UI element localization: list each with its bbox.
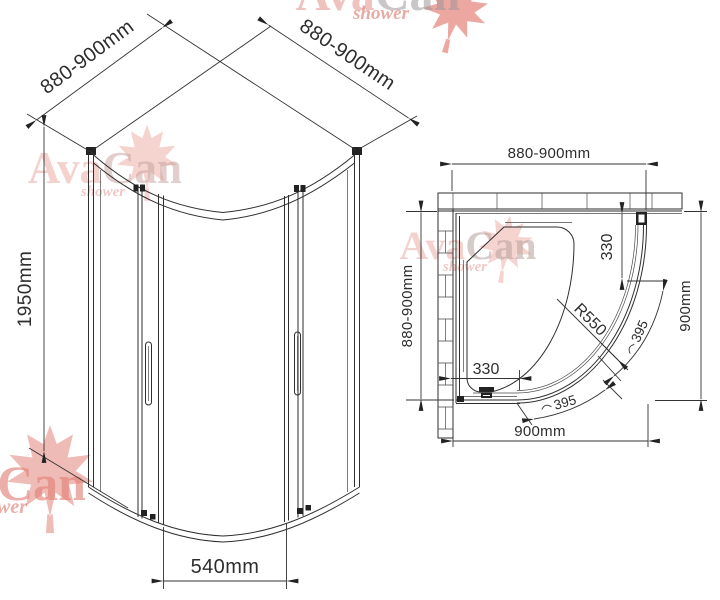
watermark-shower-text: shower <box>352 3 410 24</box>
dim-label-iso-wall-right: 880-900mm <box>295 15 399 95</box>
dim-label-plan-right: 900mm <box>677 280 694 332</box>
tray-bottom-rim <box>456 400 520 404</box>
door-stiles <box>138 188 303 525</box>
door-rollers <box>141 505 311 520</box>
dim-label-opening: 540mm <box>191 556 260 578</box>
watermark-shower-text: shower <box>442 259 487 275</box>
dim-label-height: 1950mm <box>15 251 36 327</box>
dim-ext-top <box>452 170 646 210</box>
bottom-rail <box>89 487 360 542</box>
dim-label-plan-top: 880-900mm <box>508 145 591 162</box>
extension-lines <box>27 14 417 508</box>
arc-label-upper: 395 <box>623 318 651 357</box>
dim-label-radius: R550 <box>570 300 609 339</box>
plan-view: 880-900mm 880-900mm 900mm 900mm 330 <box>399 145 707 447</box>
arc-symbol-icon <box>627 343 634 353</box>
door-handle-left <box>146 342 152 405</box>
watermark-left: AvaCan shower <box>28 125 182 201</box>
dim-label-arc-upper: 395 <box>628 318 651 345</box>
corner-posts <box>89 153 360 487</box>
dim-label-plan-bottom: 900mm <box>514 423 566 440</box>
shower-enclosure-technical-drawing: AvaCan shower AvaCan shower AvaCan showe… <box>0 0 720 600</box>
wall-top <box>438 193 682 209</box>
watermark-shower-text: shower <box>0 496 27 518</box>
corner-post-slot <box>639 215 645 223</box>
door-handle-right <box>295 332 301 395</box>
dim-label-iso-wall-left: 880-900mm <box>37 16 139 99</box>
wall-top-joints <box>453 193 652 209</box>
watermark-shower-text: shower <box>80 184 125 200</box>
dim-label-offset-h: 330 <box>473 361 500 378</box>
dim-label-offset-v: 330 <box>599 234 616 261</box>
dim-label-plan-left: 880-900mm <box>399 265 416 348</box>
watermark-bottom-left: AvaCan shower <box>0 425 93 533</box>
arc-symbol-icon <box>541 404 551 410</box>
iso-enclosure <box>86 147 362 542</box>
